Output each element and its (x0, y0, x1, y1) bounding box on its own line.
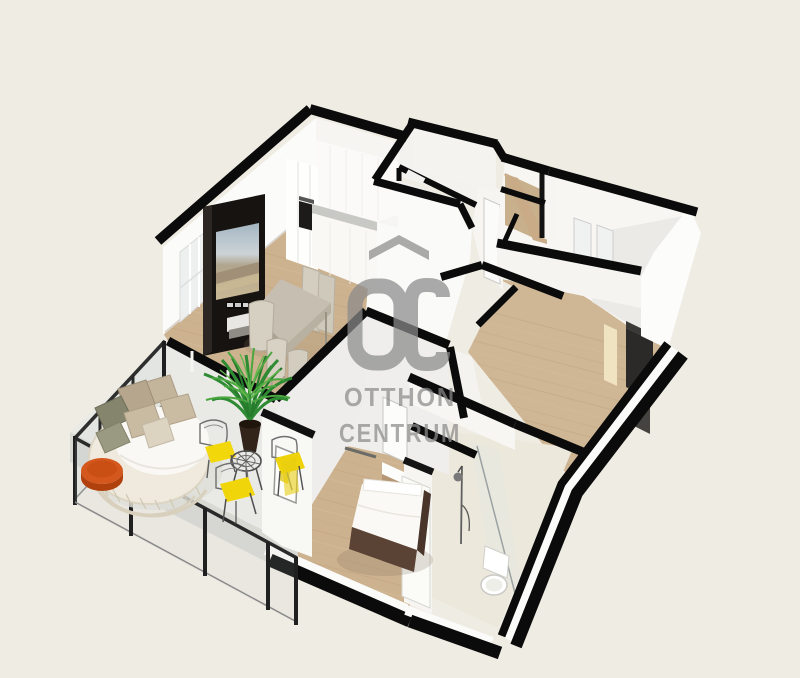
svg-text:CENTRUM: CENTRUM (339, 418, 461, 448)
svg-text:OTTHON: OTTHON (344, 382, 456, 412)
